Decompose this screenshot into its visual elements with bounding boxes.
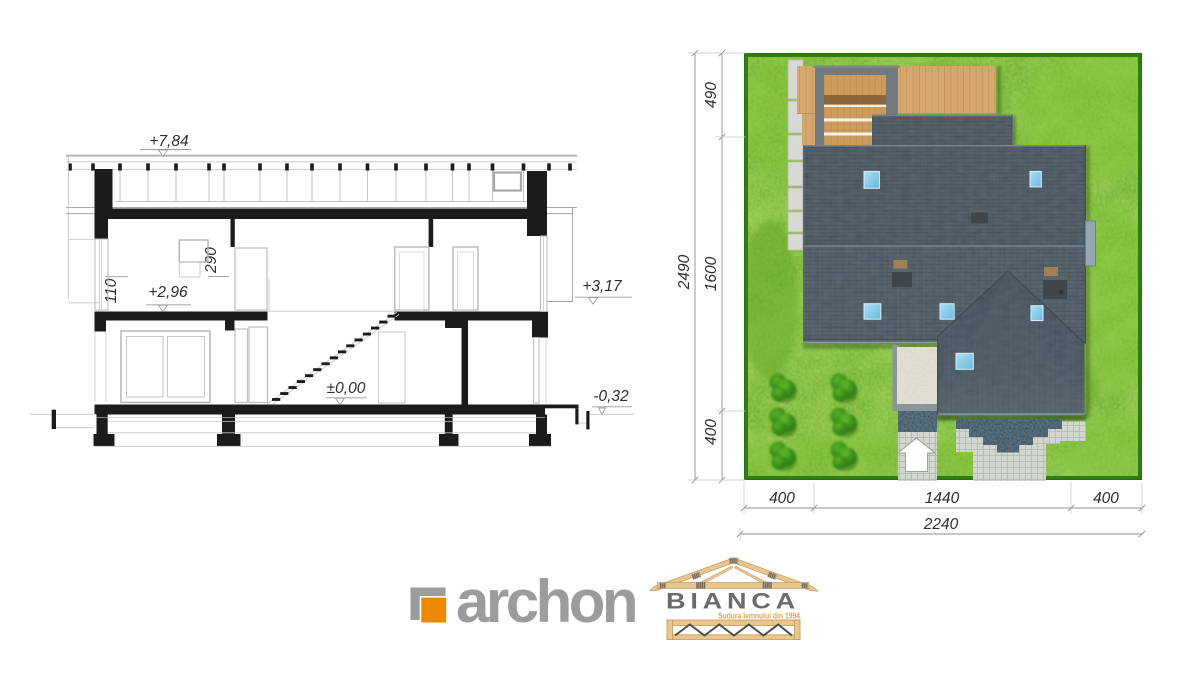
svg-text:±0,00: ±0,00 (327, 380, 366, 397)
svg-text:+7,84: +7,84 (149, 133, 189, 150)
svg-text:290: 290 (203, 247, 220, 274)
svg-text:400: 400 (769, 490, 795, 507)
svg-text:490: 490 (703, 82, 720, 108)
svg-text:Sudura lemnului din 1994: Sudura lemnului din 1994 (718, 611, 800, 621)
svg-text:400: 400 (1093, 490, 1119, 507)
svg-text:-0,32: -0,32 (593, 388, 629, 405)
svg-text:+2,96: +2,96 (148, 284, 188, 301)
svg-text:400: 400 (703, 419, 720, 445)
svg-text:2490: 2490 (676, 254, 693, 290)
svg-text:archon: archon (456, 568, 635, 635)
svg-text:1600: 1600 (703, 256, 720, 291)
svg-text:2240: 2240 (923, 516, 959, 533)
svg-text:110: 110 (103, 278, 120, 303)
svg-text:1440: 1440 (925, 490, 960, 507)
svg-text:+3,17: +3,17 (582, 278, 623, 295)
